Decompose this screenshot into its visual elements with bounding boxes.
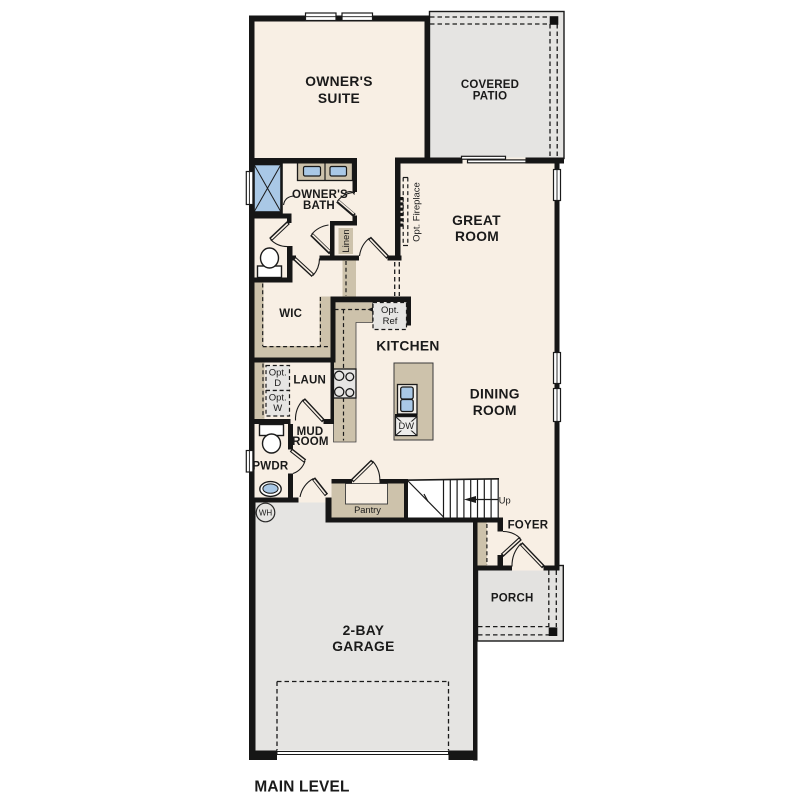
- svg-text:Ref: Ref: [383, 316, 398, 327]
- svg-text:BATH: BATH: [303, 200, 335, 212]
- svg-text:Linen: Linen: [341, 229, 352, 252]
- svg-text:Opt. Fireplace: Opt. Fireplace: [412, 182, 423, 242]
- svg-text:WIC: WIC: [279, 308, 302, 320]
- svg-text:Pantry: Pantry: [354, 505, 381, 515]
- svg-text:COVERED: COVERED: [461, 79, 519, 91]
- svg-text:SUITE: SUITE: [318, 91, 360, 106]
- svg-text:PWDR: PWDR: [252, 461, 288, 473]
- svg-text:Opt.: Opt.: [269, 368, 287, 379]
- svg-text:2-BAY: 2-BAY: [343, 623, 385, 638]
- svg-text:LAUN: LAUN: [293, 375, 326, 387]
- svg-text:D: D: [274, 378, 281, 389]
- svg-text:ROOM: ROOM: [473, 403, 517, 418]
- svg-text:WH: WH: [259, 509, 273, 518]
- svg-text:PATIO: PATIO: [473, 91, 507, 103]
- svg-text:Opt.: Opt.: [269, 393, 287, 404]
- svg-text:GREAT: GREAT: [452, 213, 501, 228]
- svg-text:OWNER'S: OWNER'S: [305, 74, 372, 89]
- svg-text:KITCHEN: KITCHEN: [376, 339, 439, 354]
- svg-text:FOYER: FOYER: [508, 520, 549, 532]
- svg-text:ROOM: ROOM: [292, 436, 329, 448]
- svg-text:DINING: DINING: [470, 387, 520, 402]
- svg-text:GARAGE: GARAGE: [332, 639, 394, 654]
- svg-text:ROOM: ROOM: [455, 229, 499, 244]
- svg-text:Opt.: Opt.: [381, 305, 399, 316]
- svg-text:MAIN LEVEL: MAIN LEVEL: [254, 779, 349, 796]
- svg-text:DW: DW: [399, 421, 415, 431]
- svg-text:Up: Up: [499, 496, 511, 506]
- svg-text:PORCH: PORCH: [491, 593, 534, 605]
- svg-text:W: W: [273, 403, 282, 414]
